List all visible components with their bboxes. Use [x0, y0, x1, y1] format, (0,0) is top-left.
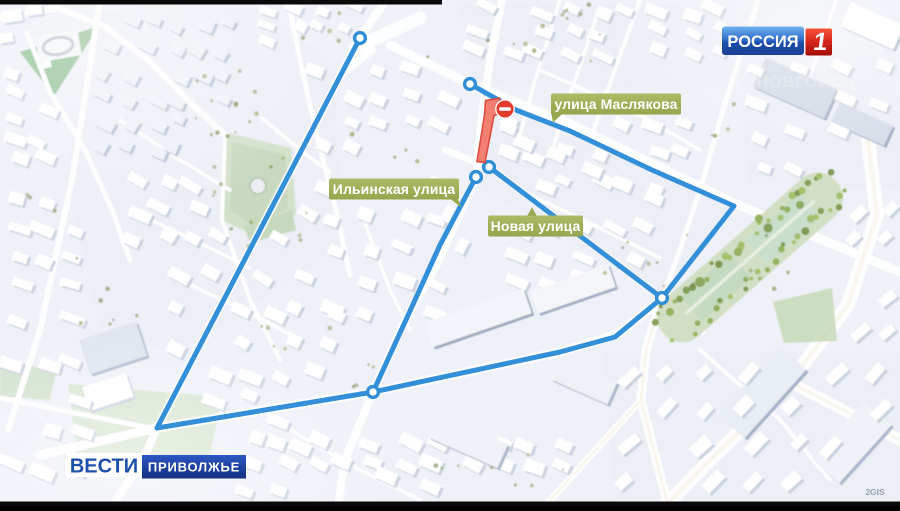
svg-text:Новая улица: Новая улица: [491, 218, 581, 234]
svg-text:ПРИВОЛЖЬЕ: ПРИВОЛЖЬЕ: [148, 460, 240, 475]
svg-text:НОВГОРОД: НОВГОРОД: [757, 74, 856, 91]
svg-text:Ильинская улица: Ильинская улица: [333, 181, 456, 197]
svg-text:улица Маслякова: улица Маслякова: [554, 96, 677, 112]
svg-text:НИЖНИЙ: НИЖНИЙ: [777, 53, 855, 72]
svg-text:ВЕСТИ: ВЕСТИ: [70, 456, 138, 478]
svg-text:2GIS: 2GIS: [865, 487, 885, 497]
svg-text:РОССИЯ: РОССИЯ: [727, 33, 798, 51]
